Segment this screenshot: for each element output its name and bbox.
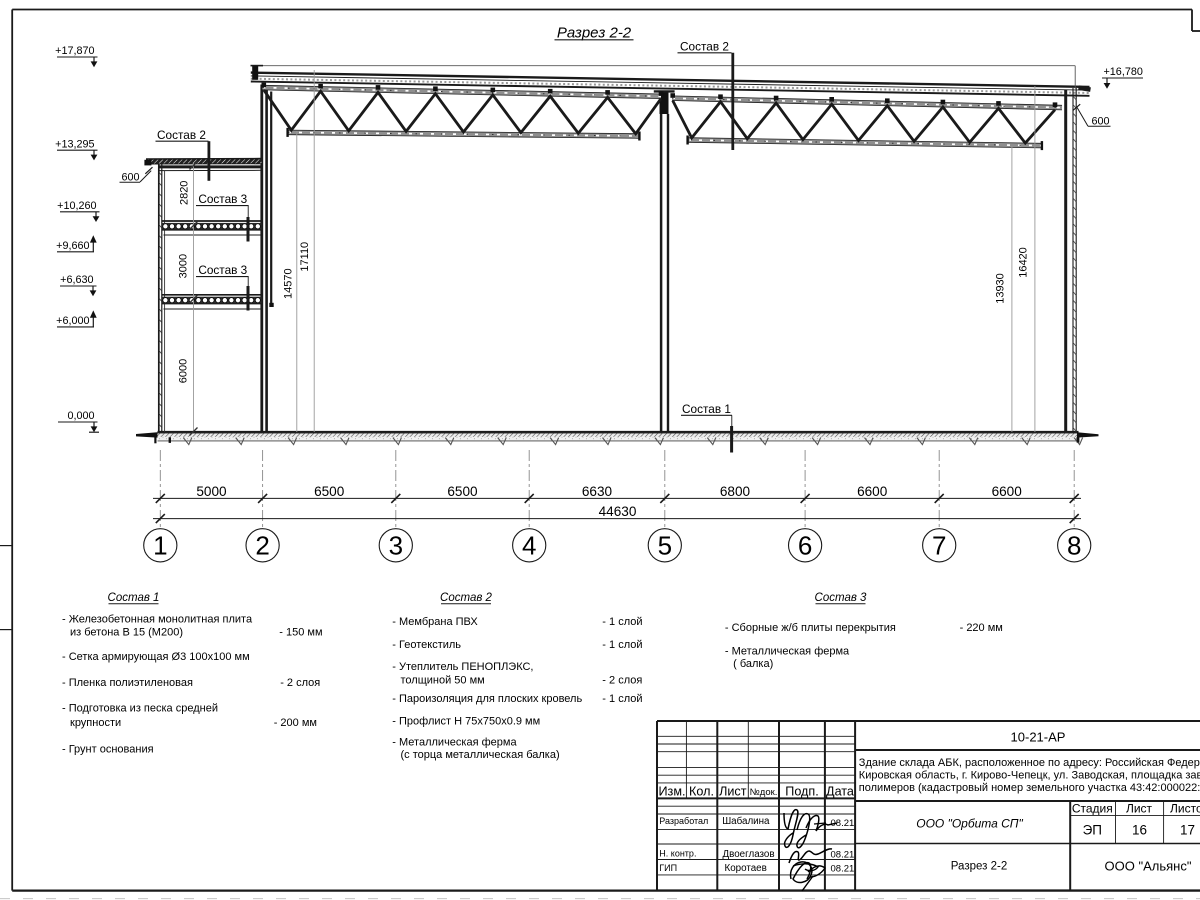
svg-text:- 1 слой: - 1 слой	[602, 616, 642, 628]
svg-text:+10,260: +10,260	[57, 200, 96, 212]
svg-text:- 200 мм: - 200 мм	[274, 717, 317, 729]
svg-text:3: 3	[389, 531, 403, 561]
svg-text:Кол.: Кол.	[689, 784, 714, 798]
svg-text:- 220 мм: - 220 мм	[960, 622, 1003, 634]
svg-text:- Геотекстиль: - Геотекстиль	[392, 639, 461, 651]
svg-text:14570: 14570	[283, 268, 295, 299]
svg-text:из бетона В 15 (М200): из бетона В 15 (М200)	[70, 626, 183, 638]
svg-text:- Сетка армирующая Ø3 100x100: - Сетка армирующая Ø3 100x100 мм	[62, 651, 250, 663]
svg-text:- Профлист Н 75х750х0.9 мм: - Профлист Н 75х750х0.9 мм	[392, 716, 540, 728]
svg-text:Состав 1: Состав 1	[108, 592, 160, 604]
svg-text:Лист: Лист	[719, 784, 747, 798]
svg-text:- Утеплитель ПЕНОПЛЭКС,: - Утеплитель ПЕНОПЛЭКС,	[392, 661, 533, 673]
svg-text:Подп.: Подп.	[785, 784, 818, 798]
svg-text:- Сборные ж/б плиты перекрытия: - Сборные ж/б плиты перекрытия	[725, 622, 896, 634]
svg-text:4: 4	[522, 531, 536, 561]
svg-text:- 1 слой: - 1 слой	[602, 639, 642, 651]
svg-text:( балка): ( балка)	[733, 658, 773, 670]
svg-text:+6,000: +6,000	[56, 315, 89, 327]
svg-text:Здание склада АБК, расположенн: Здание склада АБК, расположенное по адре…	[859, 757, 1200, 769]
svg-text:6500: 6500	[314, 484, 345, 499]
svg-text:16: 16	[1132, 823, 1147, 838]
svg-text:ООО "Орбита СП": ООО "Орбита СП"	[916, 817, 1023, 831]
svg-text:полимеров (кадастровый номер з: полимеров (кадастровый номер земельного …	[859, 782, 1200, 794]
svg-text:- Грунт основания: - Грунт основания	[62, 744, 154, 756]
svg-text:5000: 5000	[196, 484, 227, 499]
svg-text:Разработал: Разработал	[659, 816, 708, 826]
svg-text:6000: 6000	[178, 359, 190, 383]
svg-text:Коротаев: Коротаев	[725, 863, 767, 874]
svg-text:5: 5	[658, 531, 672, 561]
svg-text:44630: 44630	[599, 504, 637, 519]
svg-text:- Металлическая ферма: - Металлическая ферма	[392, 737, 517, 749]
svg-text:8: 8	[1067, 531, 1081, 561]
svg-text:- Подготовка из песка средней: - Подготовка из песка средней	[62, 703, 218, 715]
svg-text:Шабалина: Шабалина	[722, 816, 770, 827]
svg-text:16420: 16420	[1018, 247, 1030, 278]
svg-text:- Мембрана ПВХ: - Мембрана ПВХ	[392, 616, 478, 628]
svg-text:17: 17	[1180, 823, 1195, 838]
svg-text:ООО "Альянс": ООО "Альянс"	[1105, 859, 1192, 874]
svg-text:- Пароизоляция для плоских кро: - Пароизоляция для плоских кровель	[392, 693, 582, 705]
svg-text:Кировская область, г. Кирово-Ч: Кировская область, г. Кирово-Чепецк, ул.…	[859, 769, 1200, 781]
svg-text:Двоеглазов: Двоеглазов	[723, 849, 775, 860]
svg-text:Разрез 2-2: Разрез 2-2	[557, 25, 632, 42]
svg-text:2820: 2820	[179, 181, 191, 205]
svg-text:6630: 6630	[582, 484, 613, 499]
svg-text:ГИП: ГИП	[659, 863, 677, 873]
svg-text:- 1 слой: - 1 слой	[602, 693, 642, 705]
svg-text:Разрез 2-2: Разрез 2-2	[951, 861, 1007, 873]
svg-text:6600: 6600	[857, 484, 888, 499]
svg-text:08.21: 08.21	[831, 863, 855, 874]
svg-text:+17,870: +17,870	[55, 45, 94, 57]
svg-text:- 2 слоя: - 2 слоя	[280, 677, 320, 689]
svg-text:Изм.: Изм.	[659, 784, 686, 798]
svg-text:+13,295: +13,295	[55, 138, 94, 150]
svg-text:Стадия: Стадия	[1072, 802, 1113, 816]
svg-text:№док.: №док.	[750, 787, 778, 798]
svg-text:Лист: Лист	[1126, 802, 1153, 816]
svg-text:ЭП: ЭП	[1083, 823, 1102, 838]
svg-text:6: 6	[798, 531, 812, 561]
svg-text:Состав 1: Состав 1	[682, 402, 731, 416]
svg-text:6500: 6500	[447, 484, 478, 499]
svg-text:Состав 2: Состав 2	[157, 128, 206, 142]
svg-text:- 150 мм: - 150 мм	[279, 626, 322, 638]
svg-text:Н. контр.: Н. контр.	[659, 849, 696, 859]
svg-text:Состав 2: Состав 2	[440, 592, 492, 604]
svg-text:Листов: Листов	[1170, 802, 1200, 816]
svg-text:3000: 3000	[178, 254, 190, 278]
svg-text:- Металлическая ферма: - Металлическая ферма	[725, 646, 850, 658]
svg-text:17110: 17110	[299, 242, 311, 272]
svg-text:08.21: 08.21	[831, 849, 855, 860]
svg-text:6800: 6800	[720, 484, 751, 499]
svg-text:13930: 13930	[995, 273, 1007, 304]
svg-text:Состав 3: Состав 3	[198, 263, 247, 277]
svg-text:+9,660: +9,660	[56, 240, 89, 252]
svg-text:- 2 слоя: - 2 слоя	[602, 675, 642, 687]
svg-text:0,000: 0,000	[67, 410, 94, 422]
svg-text:Дата: Дата	[826, 784, 854, 798]
svg-text:крупности: крупности	[70, 717, 121, 729]
svg-text:- Пленка полиэтиленовая: - Пленка полиэтиленовая	[62, 677, 193, 689]
svg-text:1: 1	[153, 531, 167, 561]
svg-text:(с торца металлическая балка): (с торца металлическая балка)	[401, 749, 560, 761]
svg-text:+16,780: +16,780	[1104, 66, 1143, 78]
svg-text:Состав 3: Состав 3	[198, 192, 247, 206]
svg-text:толщиной 50 мм: толщиной 50 мм	[401, 675, 485, 687]
svg-text:- Железобетонная монолитная п: - Железобетонная монолитная плита	[62, 614, 253, 626]
svg-text:Состав 2: Состав 2	[680, 39, 729, 53]
svg-text:10-21-АР: 10-21-АР	[1011, 729, 1066, 744]
svg-text:2: 2	[255, 531, 269, 561]
svg-text:7: 7	[932, 531, 946, 561]
svg-text:+6,630: +6,630	[60, 274, 93, 286]
svg-text:Состав 3: Состав 3	[815, 592, 867, 604]
svg-text:6600: 6600	[992, 484, 1023, 499]
